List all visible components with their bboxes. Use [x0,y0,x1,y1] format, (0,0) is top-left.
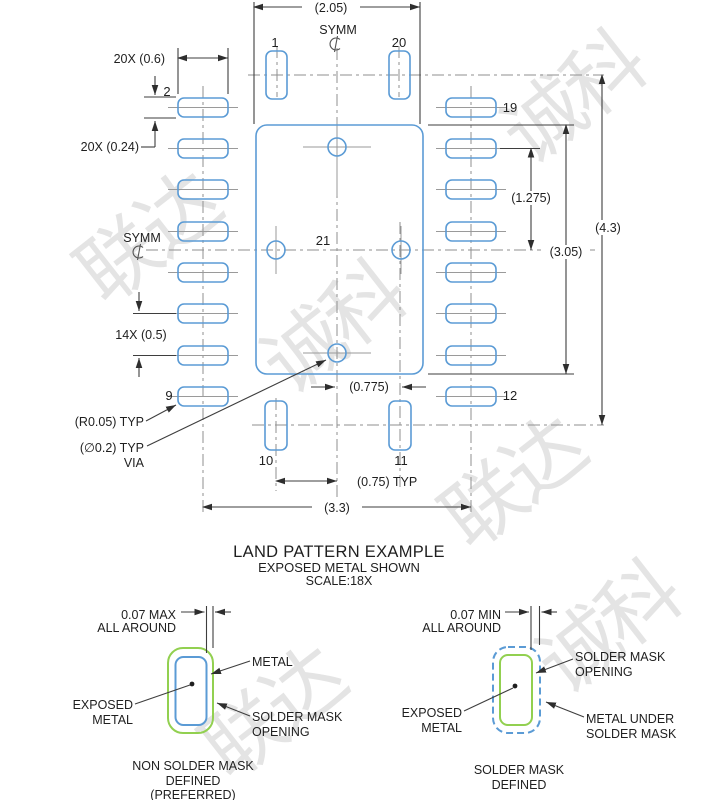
title-block: LAND PATTERN EXAMPLE EXPOSED METAL SHOWN… [233,543,445,588]
symm-label-left: SYMM [123,231,161,245]
watermark-text: 诚科 [521,545,697,710]
nsmd-metal-label: METAL [252,655,293,669]
dim-overall-height-label: (4.3) [595,221,621,235]
land-pattern-svg: 诚科 联达 诚科 联达 诚科 联达 [0,0,724,800]
symm-label-top: SYMM [319,23,357,37]
nsmd-exposed-metal-label-line2: METAL [92,713,133,727]
nsmd-caption-line2: DEFINED [166,774,221,788]
smd-metal-under-label-line1: METAL UNDER [586,712,674,726]
dim-pitch-label: 14X (0.5) [115,328,166,342]
dim-pad-height: 20X (0.24) [81,76,176,154]
smd-opening-label-line2: OPENING [575,665,633,679]
pin-label-1: 1 [271,35,278,50]
dim-overall-span-label: (3.3) [324,501,350,515]
smd-opening-label-line1: SOLDER MASK [575,650,666,664]
dim-via-offset-label: (0.775) [349,380,389,394]
nsmd-opening-label-line2: OPENING [252,725,310,739]
pin-labels: 1 20 2 19 9 12 10 11 21 [163,35,517,468]
pin-label-9: 9 [165,388,172,403]
pin-label-12: 12 [503,388,517,403]
smd-clearance-line2: ALL AROUND [422,621,501,635]
dim-pad-width-label: 20X (0.6) [114,52,165,66]
callout-via-label: VIA [124,456,145,470]
dim-pad-height-label: 20X (0.24) [81,140,139,154]
smd-caption-line1: SOLDER MASK [474,763,565,777]
centerline-symbol-top [330,36,340,52]
smd-clearance-line1: 0.07 MIN [450,608,501,622]
watermark-text: 诚科 [486,15,662,180]
nsmd-caption-line1: NON SOLDER MASK [132,759,254,773]
pin-label-11: 11 [394,453,408,468]
pin-label-21: 21 [316,233,330,248]
dim-overall-width-label: (2.05) [315,1,348,15]
drawing-title: LAND PATTERN EXAMPLE [233,543,445,561]
nsmd-opening-label-line1: SOLDER MASK [252,710,343,724]
nsmd-exposed-metal-label-line1: EXPOSED [73,698,133,712]
smd-exposed-metal-dot [513,684,518,689]
smd-metal-under-label-line2: SOLDER MASK [586,727,677,741]
nsmd-exposed-metal-dot [190,682,195,687]
dim-pad-width: 20X (0.6) [114,48,228,94]
smd-caption-line2: DEFINED [492,778,547,792]
dim-pad-offset-label: (0.75) TYP [357,475,417,489]
smd-solder-mask-opening-outline [500,655,532,725]
dim-half-height-label: (1.275) [511,191,551,205]
smd-exposed-metal-label-line2: METAL [421,721,462,735]
dim-thermal-height-label: (3.05) [550,245,583,259]
nsmd-clearance-line1: 0.07 MAX [121,608,177,622]
land-pattern-drawing-page: 诚科 联达 诚科 联达 诚科 联达 [0,0,724,800]
pin-label-19: 19 [503,100,517,115]
pin-label-2: 2 [163,84,170,99]
pin-label-20: 20 [392,35,406,50]
drawing-scale: SCALE:18X [306,574,373,588]
callout-corner-radius: (R0.05) TYP [75,405,176,429]
smd-exposed-metal-label-line1: EXPOSED [402,706,462,720]
pin-label-10: 10 [259,453,273,468]
callout-via-diameter-label: (∅0.2) TYP [80,441,144,455]
dim-pad-offset: (0.75) TYP [276,475,417,489]
drawing-subtitle: EXPOSED METAL SHOWN [258,560,420,575]
callout-corner-radius-label: (R0.05) TYP [75,415,144,429]
nsmd-caption-line3: (PREFERRED) [150,788,235,800]
nsmd-clearance-line2: ALL AROUND [97,621,176,635]
